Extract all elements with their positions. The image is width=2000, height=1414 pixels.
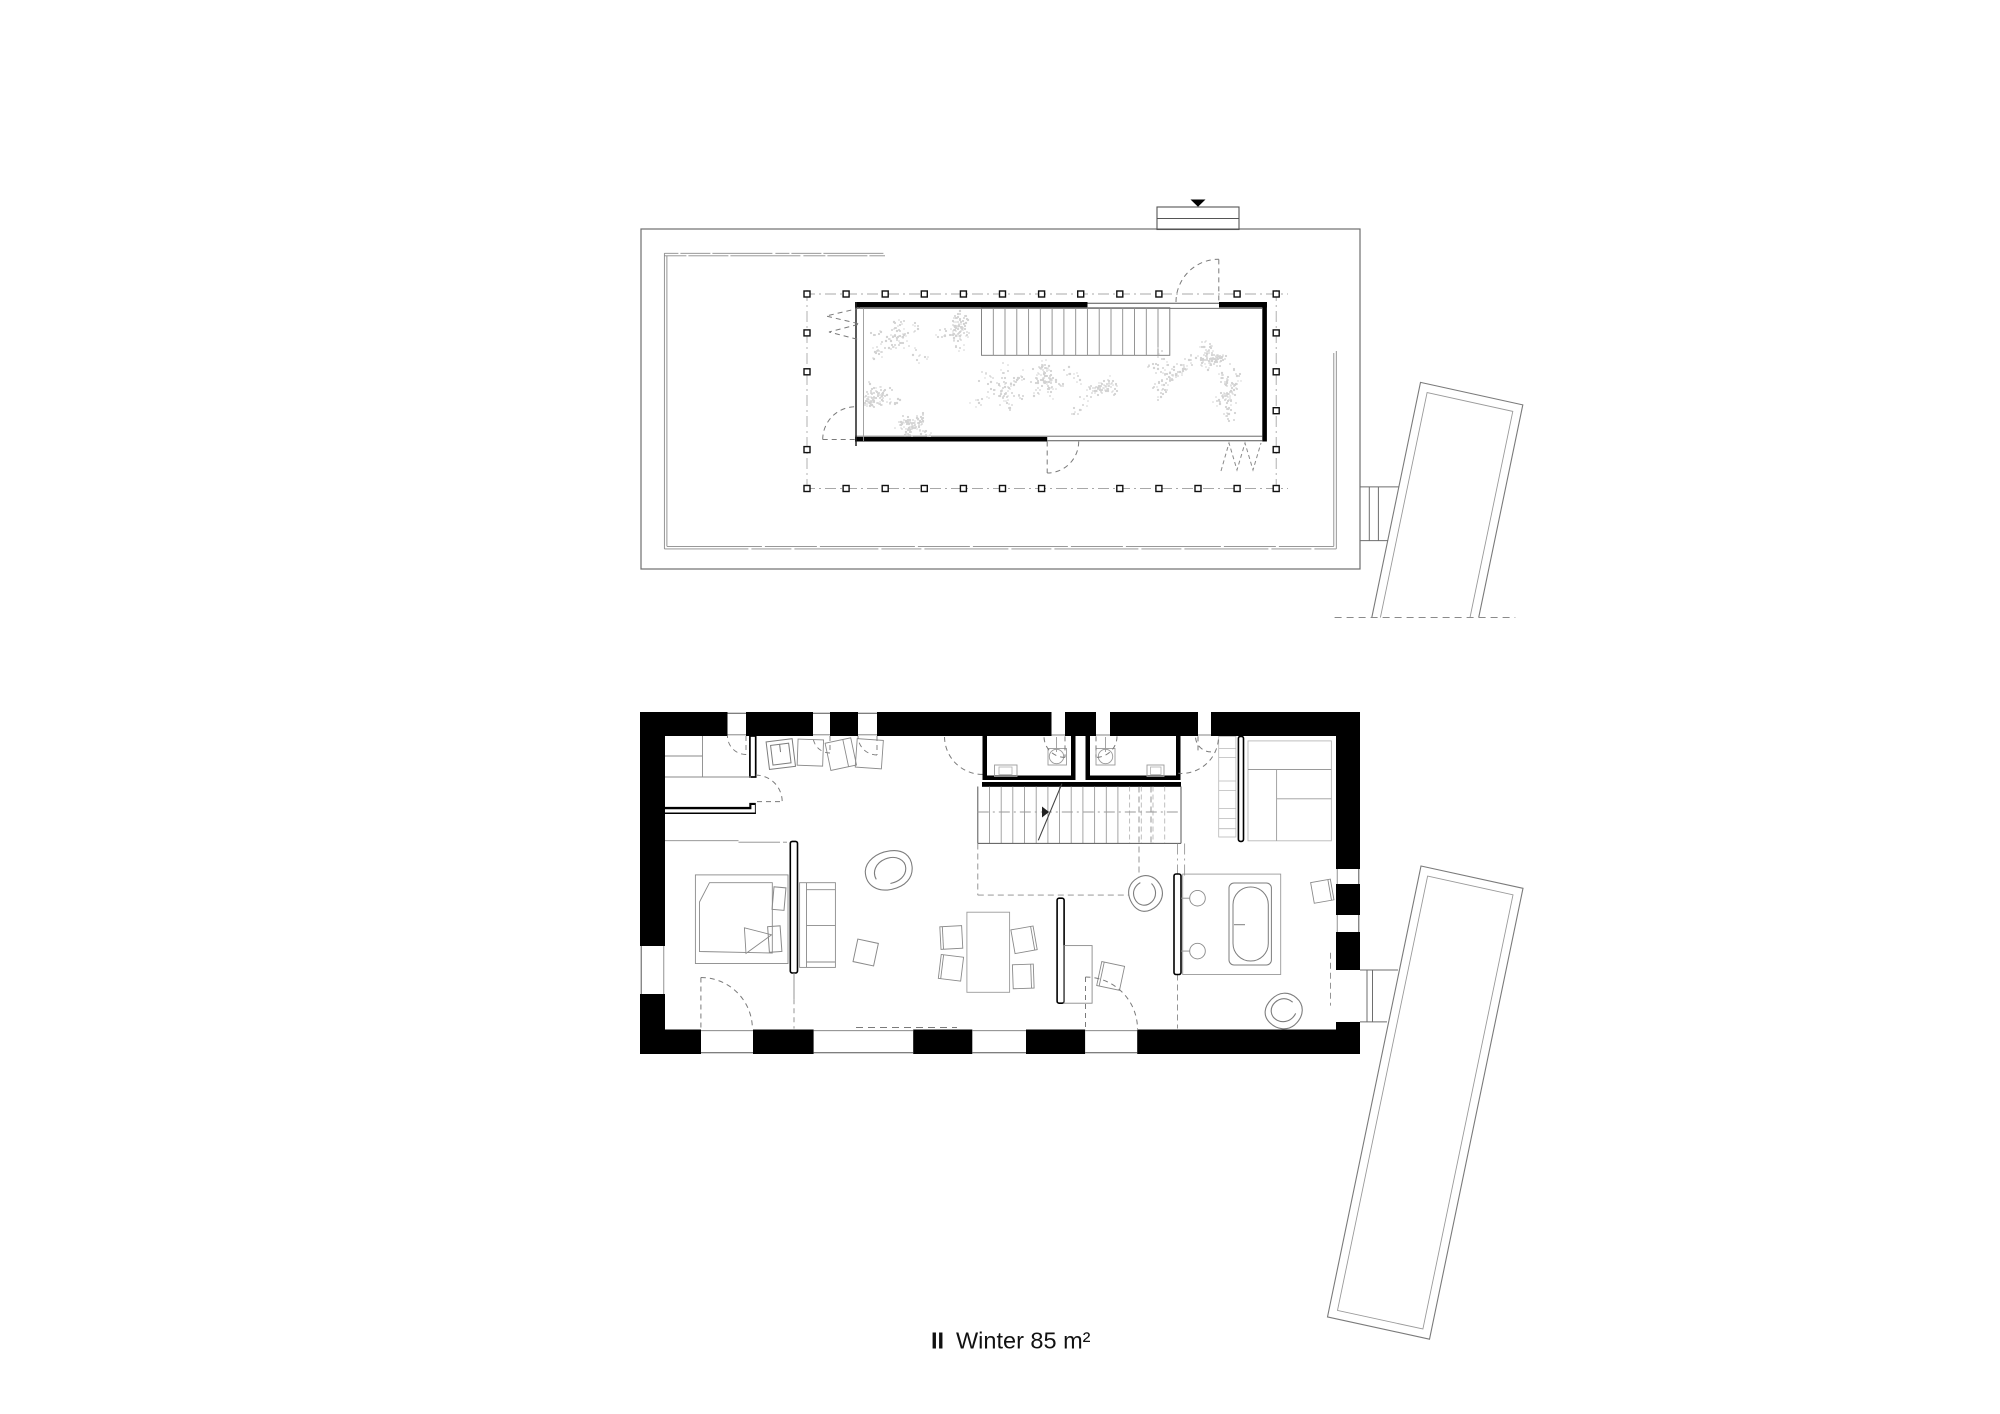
- svg-text:Winter 85 m²: Winter 85 m²: [956, 1328, 1091, 1354]
- svg-text:II: II: [931, 1328, 944, 1354]
